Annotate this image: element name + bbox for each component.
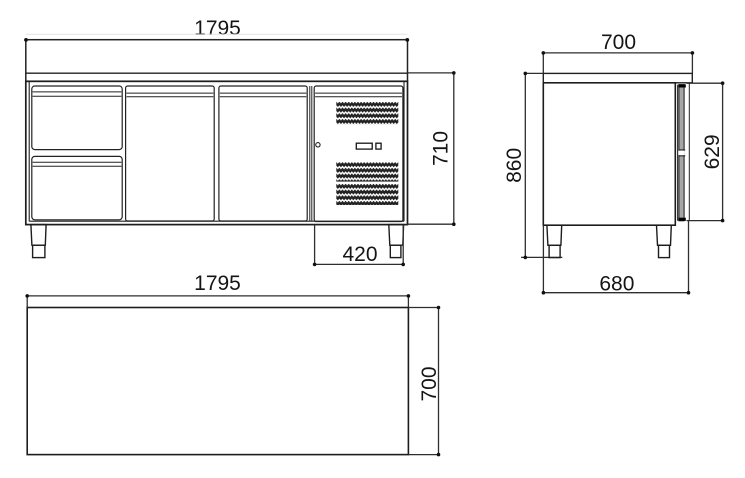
svg-text:700: 700 <box>601 31 636 54</box>
svg-text:420: 420 <box>342 243 377 266</box>
svg-text:629: 629 <box>701 134 724 169</box>
svg-text:700: 700 <box>418 366 441 401</box>
svg-text:860: 860 <box>503 148 526 183</box>
svg-text:710: 710 <box>430 131 453 166</box>
svg-text:680: 680 <box>599 273 634 296</box>
svg-text:1795: 1795 <box>194 17 241 40</box>
svg-text:1795: 1795 <box>194 272 241 295</box>
